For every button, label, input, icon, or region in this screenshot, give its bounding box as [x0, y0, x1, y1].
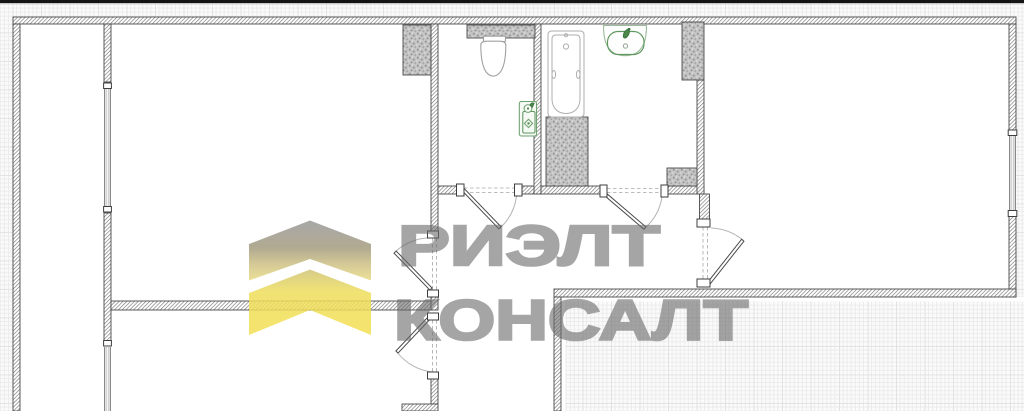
svg-text:КОНСАЛТ: КОНСАЛТ	[394, 289, 748, 353]
svg-text:РИЭЛТ: РИЭЛТ	[398, 214, 660, 278]
